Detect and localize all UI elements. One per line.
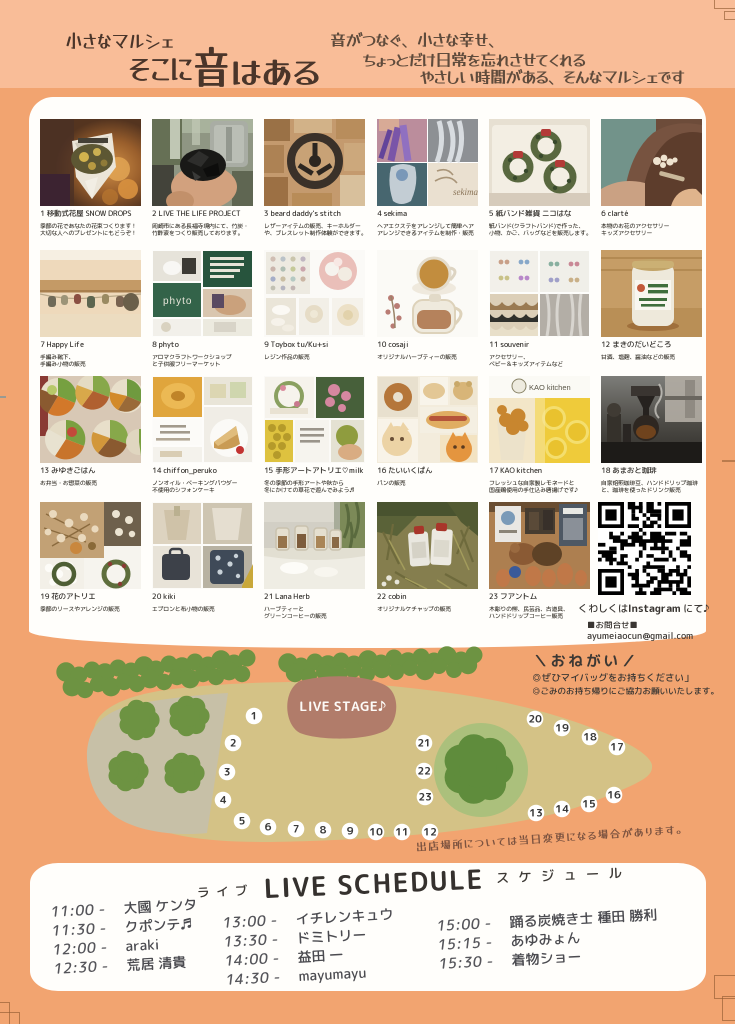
svg-text:2: 2 xyxy=(230,737,237,751)
svg-text:sekima: sekima xyxy=(453,187,478,197)
svg-text:17: 17 xyxy=(610,741,623,755)
svg-text:4: 4 xyxy=(220,794,227,808)
svg-text:23: 23 xyxy=(418,791,432,805)
svg-text:11: 11 xyxy=(395,826,408,840)
svg-text:19: 19 xyxy=(555,722,569,736)
svg-text:LIVE STAGE♪: LIVE STAGE♪ xyxy=(299,697,386,716)
svg-text:18: 18 xyxy=(583,731,597,745)
svg-text:7: 7 xyxy=(293,823,300,837)
svg-text:13: 13 xyxy=(529,807,543,821)
svg-text:6: 6 xyxy=(265,821,272,835)
svg-text:phyto: phyto xyxy=(163,296,192,307)
svg-text:21: 21 xyxy=(417,737,430,751)
svg-text:15: 15 xyxy=(582,798,595,812)
svg-text:20: 20 xyxy=(528,713,542,727)
svg-text:3: 3 xyxy=(224,766,231,780)
svg-text:1: 1 xyxy=(251,710,258,724)
svg-text:5: 5 xyxy=(239,815,246,829)
svg-text:KAO kitchen: KAO kitchen xyxy=(529,383,571,392)
svg-text:14: 14 xyxy=(555,803,569,817)
svg-text:10: 10 xyxy=(369,826,383,840)
svg-text:9: 9 xyxy=(347,825,354,839)
svg-text:22: 22 xyxy=(417,765,431,779)
svg-text:16: 16 xyxy=(607,789,621,803)
svg-text:8: 8 xyxy=(320,824,327,838)
